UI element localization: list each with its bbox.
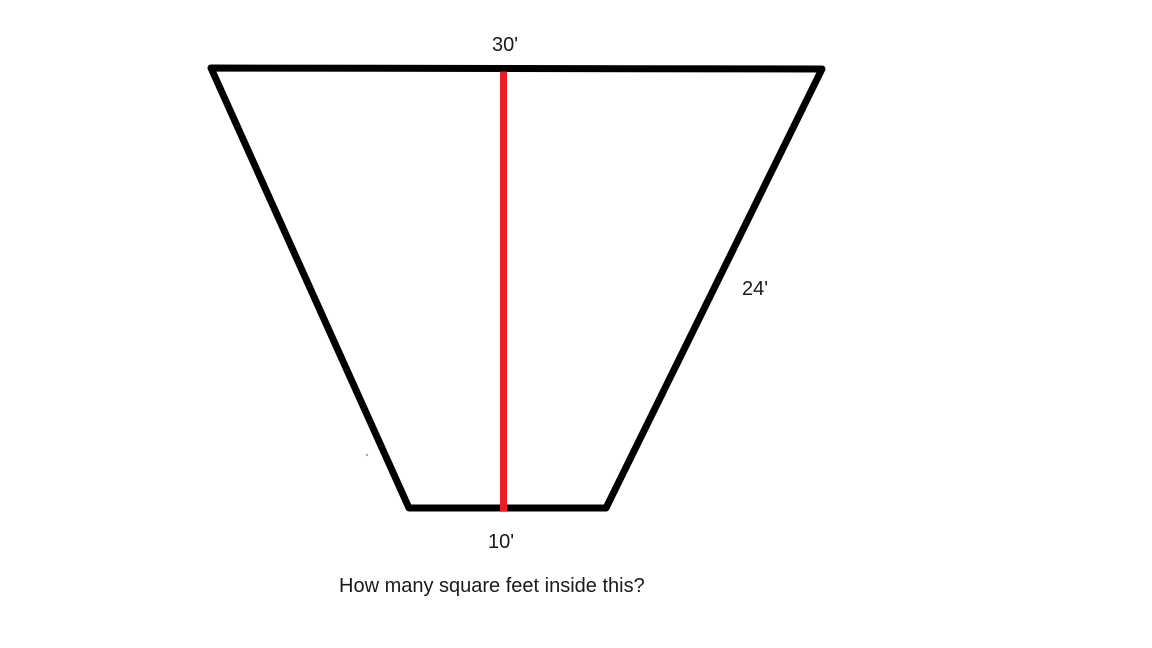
question-text: How many square feet inside this?	[339, 575, 645, 598]
top-side-length-label: 30'	[480, 34, 530, 56]
trapezoid-outline	[211, 68, 822, 508]
stray-mark-dot	[366, 454, 368, 456]
right-side-length-label: 24'	[742, 278, 768, 300]
paint-canvas: 30' 24' 10' How many square feet inside …	[0, 0, 1152, 648]
trapezoid-figure	[0, 0, 1152, 648]
bottom-side-length-label: 10'	[476, 531, 526, 553]
